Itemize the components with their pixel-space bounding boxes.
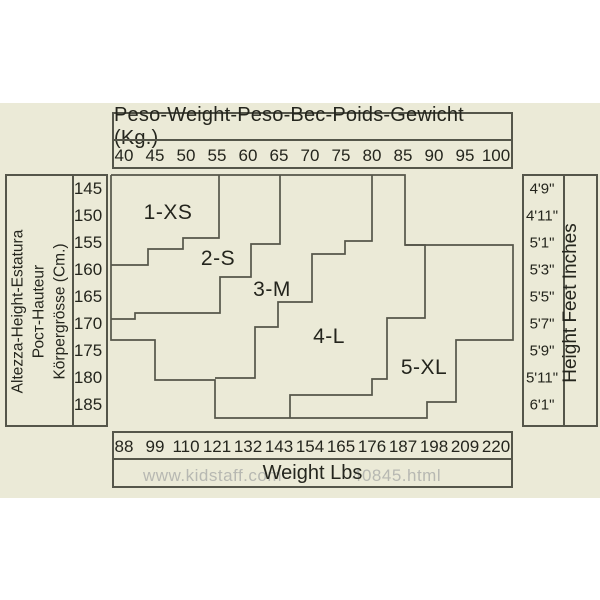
lbs-axis-ticks-row: 8899110121132143154165176187198209220	[112, 431, 513, 460]
watermark-right: 40845.html	[352, 466, 441, 486]
lbs-tick-132: 132	[234, 437, 262, 457]
size-chart-page: Peso-Weight-Peso-Вес-Poids-Gewicht (Kg.)…	[0, 0, 600, 600]
watermark-left: www.kidstaff.com	[143, 466, 282, 486]
lbs-tick-121: 121	[203, 437, 231, 457]
lbs-tick-110: 110	[172, 437, 199, 457]
lbs-tick-198: 198	[420, 437, 448, 457]
lbs-tick-154: 154	[296, 437, 324, 457]
lbs-tick-220: 220	[482, 437, 510, 457]
lbs-axis-title: Weight Lbs	[263, 462, 363, 485]
lbs-tick-143: 143	[265, 437, 293, 457]
lbs-tick-99: 99	[146, 437, 165, 457]
lbs-tick-176: 176	[358, 437, 386, 457]
lbs-tick-209: 209	[451, 437, 479, 457]
lbs-tick-88: 88	[115, 437, 134, 457]
lbs-tick-187: 187	[389, 437, 417, 457]
lbs-tick-165: 165	[327, 437, 355, 457]
